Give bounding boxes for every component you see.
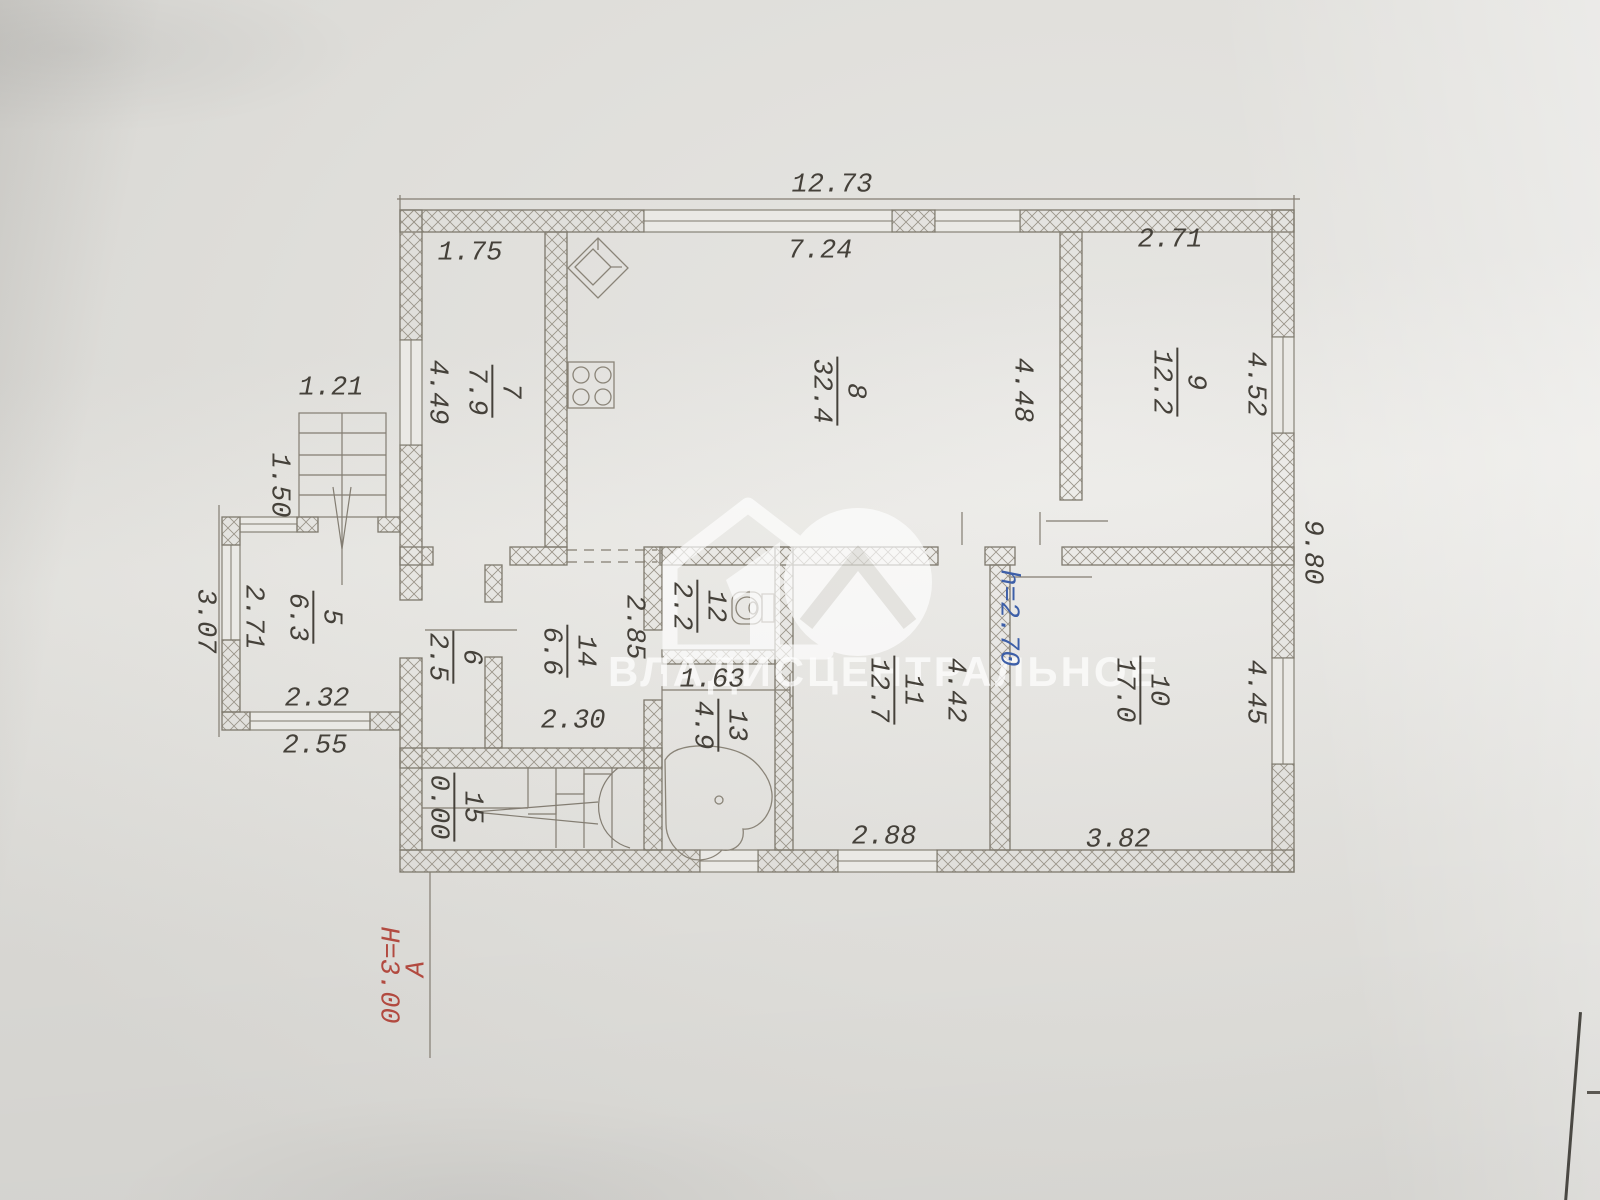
dim-label: 2.30 bbox=[541, 709, 606, 736]
dim-label: 4.45 bbox=[1241, 660, 1268, 725]
room-label: 56.3 bbox=[282, 591, 345, 644]
dim-label: 4.48 bbox=[1008, 358, 1035, 423]
dim-label: 1.75 bbox=[438, 241, 503, 268]
dim-label: 2.85 bbox=[620, 595, 647, 660]
dim-label: 3.07 bbox=[191, 589, 218, 654]
dim-label: 1.50 bbox=[265, 453, 292, 518]
stove-icon bbox=[568, 362, 614, 408]
floor-plan-photo: .w{fill:url(#ht);stroke:#7e796d;stroke-w… bbox=[0, 0, 1600, 1200]
dim-label: h=2.70 bbox=[994, 569, 1021, 666]
room-label: 62.5 bbox=[422, 631, 485, 684]
room-label: 134.9 bbox=[687, 699, 750, 752]
dim-label: 9.80 bbox=[1298, 520, 1325, 585]
dim-label: 2.71 bbox=[239, 585, 266, 650]
dim-label: 4.42 bbox=[941, 658, 968, 723]
dim-label: А bbox=[405, 961, 432, 977]
room-label: 122.2 bbox=[666, 580, 729, 633]
room-label: 77.9 bbox=[461, 365, 524, 418]
dim-label: 3.82 bbox=[1086, 828, 1151, 855]
bathtub-icon bbox=[665, 746, 772, 860]
dim-label: 4.49 bbox=[423, 360, 450, 425]
room-label: 912.2 bbox=[1146, 348, 1209, 417]
dim-label: 4.52 bbox=[1241, 352, 1268, 417]
dim-label: 2.32 bbox=[285, 687, 350, 714]
windows bbox=[222, 210, 1294, 872]
room-label: 150.00 bbox=[423, 773, 486, 842]
room-label: 146.6 bbox=[536, 625, 599, 678]
paper-edge-tick bbox=[1587, 1091, 1600, 1094]
dim-label: 2.71 bbox=[1138, 228, 1203, 255]
dim-label: 1.63 bbox=[680, 668, 745, 695]
room-label: 1017.0 bbox=[1109, 656, 1172, 725]
dim-label: 2.55 bbox=[283, 734, 348, 761]
dim-label: 12.73 bbox=[791, 173, 872, 200]
stairs-arrow-icon bbox=[474, 802, 598, 824]
room-label: 832.4 bbox=[806, 357, 869, 426]
dim-label: 2.88 bbox=[852, 825, 917, 852]
dim-label: 1.21 bbox=[299, 376, 364, 403]
dim-label: 7.24 bbox=[788, 239, 853, 266]
dim-label: H=3.00 bbox=[374, 926, 401, 1023]
entrance-stairs bbox=[299, 413, 386, 585]
room-label: 1112.7 bbox=[863, 656, 926, 725]
kitchen-sink-icon bbox=[568, 238, 628, 298]
